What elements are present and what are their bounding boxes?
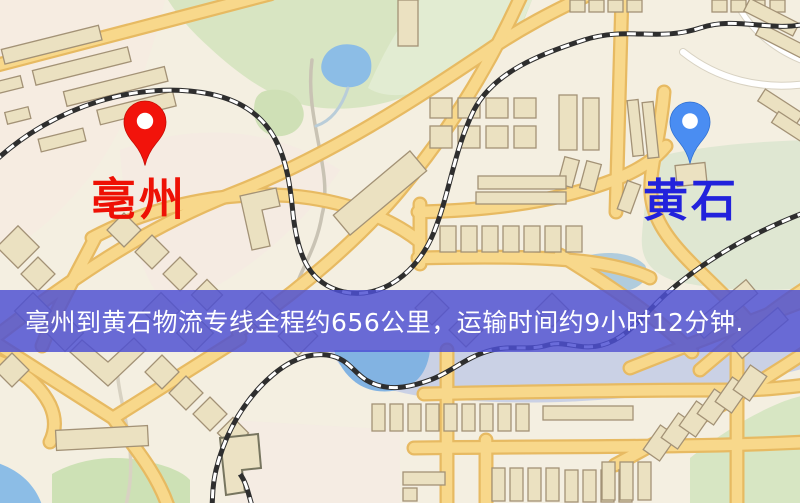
destination-city-label: 黄石 [643, 178, 739, 223]
destination-pin-icon[interactable] [669, 101, 711, 165]
route-info-text: 亳州到黄石物流专线全程约656公里，运输时间约9小时12分钟. [25, 303, 744, 339]
origin-pin-icon[interactable] [123, 100, 167, 167]
route-info-banner: 亳州到黄石物流专线全程约656公里，运输时间约9小时12分钟. [0, 290, 800, 352]
map-screenshot: 亳州 黄石 亳州到黄石物流专线全程约656公里，运输时间约9小时12分钟. [0, 0, 800, 503]
origin-city-label: 亳州 [91, 177, 187, 222]
map-background [0, 0, 800, 503]
